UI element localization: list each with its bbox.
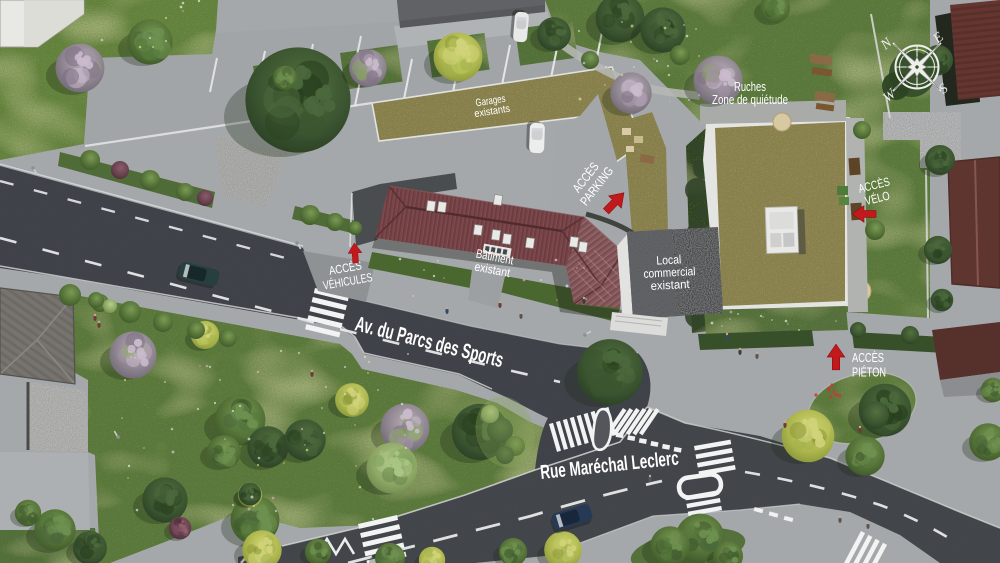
svg-text:Ruches: Ruches <box>734 80 766 94</box>
svg-text:ACCÈS: ACCÈS <box>852 350 884 365</box>
svg-text:PIÉTON: PIÉTON <box>852 365 886 380</box>
svg-text:Zone de quiétude: Zone de quiétude <box>712 93 788 107</box>
svg-text:existant: existant <box>650 277 690 293</box>
